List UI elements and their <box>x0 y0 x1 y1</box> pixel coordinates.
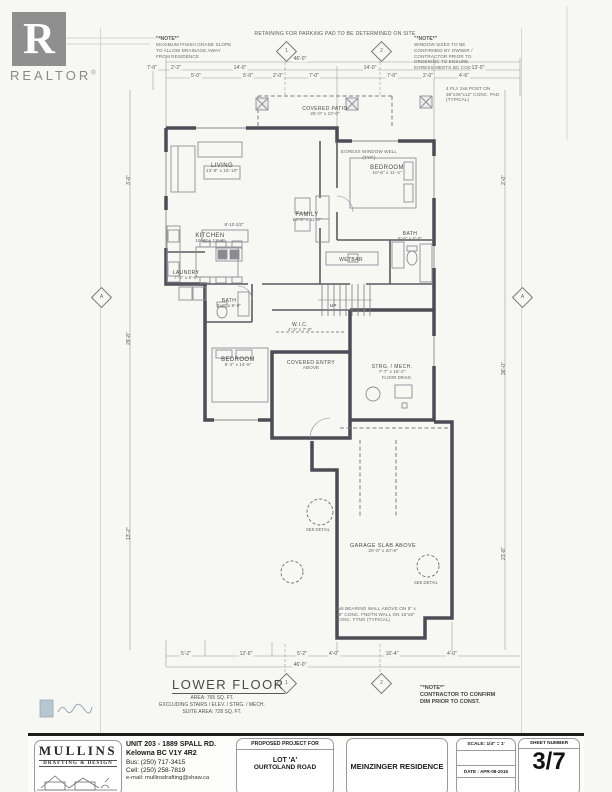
room-label-covered-patio: COVERED PATIO26'-0" x 10'-0" <box>302 106 348 117</box>
realtor-logo: R <box>12 12 66 66</box>
company-name: MULLINS <box>35 743 121 759</box>
dim-top: 14'-0" <box>233 65 248 71</box>
sheet-number-box: SHEET NUMBER 3/7 <box>518 738 580 792</box>
company-logo-box: MULLINS DRAFTING & DESIGN <box>34 740 122 792</box>
dim-bottom: 16'-4" <box>385 651 400 657</box>
project-for-label: PROPOSED PROJECT FOR <box>237 739 333 750</box>
room-label-bedroom-ll: BEDROOM9'-2" x 14'-6" <box>221 357 255 368</box>
title-block: MULLINS DRAFTING & DESIGN UNIT 203 - 188… <box>28 733 584 792</box>
dim-left: 3'-6" <box>126 175 132 185</box>
see-detail-label: SEE DETAIL <box>306 527 330 532</box>
dim-top2: 5'-0" <box>190 73 202 79</box>
project-line1: LOT 'A' <box>237 757 333 764</box>
room-label-bath-lower: BATH5'-0" x 8'-0" <box>217 298 241 309</box>
room-label-garage-slab: GARAGE SLAB ABOVE20'-8" x 20'-8" <box>350 543 416 554</box>
dim-top: 7'-0" <box>146 65 158 71</box>
dim-overall-bottom: 46'-0" <box>293 662 308 668</box>
dim-top: 14'-0" <box>363 65 378 71</box>
dim-top: 13'-0" <box>471 65 486 71</box>
dim-left: 13'-2" <box>126 527 132 540</box>
floorplan-linework <box>0 0 612 792</box>
note-left: "*NOTE*" MAXIMUM FINISH GRADE SLOPE TO A… <box>156 36 234 59</box>
kitchen-run-dim: 8'-10 1/2" <box>224 222 245 227</box>
project-line2: OURTOLAND ROAD <box>237 764 333 771</box>
realtor-wordmark: REALTOR® <box>10 68 99 83</box>
dim-bottom: 5'-2" <box>180 651 192 657</box>
scale-label: SCALE: 1/4" = 1' <box>457 739 515 751</box>
dim-top2: 5'-0" <box>242 73 254 79</box>
room-label-wic: W.I.C.4'-2" x 7'-0" <box>288 322 312 333</box>
realtor-logo-letter: R <box>23 17 55 61</box>
scale-date-box: SCALE: 1/4" = 1' DATE : APR-08-2015 <box>456 738 516 792</box>
residence-box: MEINZINGER RESIDENCE <box>346 738 448 792</box>
floor-drain-label: FLOOR DRAIN <box>382 375 411 380</box>
room-label-strg-mech: STRG. / MECH.7'-7" x 16'-2" <box>372 364 413 375</box>
registered-mark: ® <box>91 71 98 77</box>
room-label-covered-entry: COVERED ENTRYABOVE <box>287 360 335 371</box>
dim-overall-top: 46'-0" <box>293 56 308 62</box>
dim-right: 2'-0" <box>501 175 507 185</box>
company-house-sketch <box>35 768 119 792</box>
up-label: UP <box>330 303 336 308</box>
scan-marks <box>40 700 92 717</box>
room-label-living: LIVING13'-8" x 15'-10" <box>206 163 238 174</box>
stairs <box>318 284 372 316</box>
scanned-floor-plan-page: R REALTOR® RETAINING FOR PARKING PAD TO … <box>0 0 612 792</box>
dim-right: 21'-8" <box>501 547 507 560</box>
bearing-note: 2x6 BEARING WALL ABOVE ON 8" x 16" CONC.… <box>336 606 416 623</box>
dim-top: 2'-2" <box>170 65 182 71</box>
floor-title: LOWER FLOOR <box>172 677 285 694</box>
dim-bottom: 12'-6" <box>239 651 254 657</box>
dim-bottom: 5'-2" <box>296 651 308 657</box>
dim-top2: 2'-0" <box>422 73 434 79</box>
room-label-laundry: LAUNDRY7'-2" x 5'-0" <box>173 270 200 281</box>
dim-top2: 7'-0" <box>386 73 398 79</box>
dim-left: 29'-8" <box>126 332 132 345</box>
retaining-note: RETAINING FOR PARKING PAD TO BE DETERMIN… <box>230 31 440 37</box>
date-label: DATE : APR-08-2015 <box>457 765 515 778</box>
room-label-family: FAMILY14'-2" x 11'-0" <box>292 212 321 223</box>
see-detail-label: SEE DETAIL <box>414 580 438 585</box>
dim-right: 36'-0" <box>501 362 507 375</box>
exterior-walls <box>166 128 452 638</box>
dim-top2: 7'-0" <box>308 73 320 79</box>
floor-area-text: AREA: 765 SQ. FT. EXCLUDING STAIRS / ELE… <box>159 695 265 715</box>
residence-name: MEINZINGER RESIDENCE <box>347 762 447 771</box>
room-label-bedroom-tr: BEDROOM10'-6" x 11'-4" <box>370 165 404 176</box>
company-subtitle: DRAFTING & DESIGN <box>39 760 117 767</box>
room-label-kitchen: KITCHEN10'-6" x 12'-8" <box>195 233 225 244</box>
scale-box-spacer <box>457 751 515 765</box>
room-label-wetbar: WETBAR <box>339 257 363 263</box>
dim-bottom: 4'-0" <box>446 651 458 657</box>
dim-bottom: 4'-0" <box>328 651 340 657</box>
project-box: PROPOSED PROJECT FOR LOT 'A' OURTOLAND R… <box>236 738 334 792</box>
contractor-note: "*NOTE*" CONTRACTOR TO CONFIRM DIM PRIOR… <box>420 685 495 706</box>
company-address: UNIT 203 - 1889 SPALL RD. Kelowna BC V1Y… <box>126 741 236 792</box>
room-label-bath-tr: BATH8'-6" x 5'-0" <box>398 231 422 242</box>
sheet-number: 3/7 <box>519 749 579 775</box>
post-note: 4 PLY 2x6 POST ON 36"x36"x12" CONC. PAD … <box>446 86 502 103</box>
window-well-note: EGRESS WINDOW WELL (TYP.) <box>338 149 400 160</box>
dim-top2: 2'-0" <box>272 73 284 79</box>
dim-top2: 4'-6" <box>458 73 470 79</box>
